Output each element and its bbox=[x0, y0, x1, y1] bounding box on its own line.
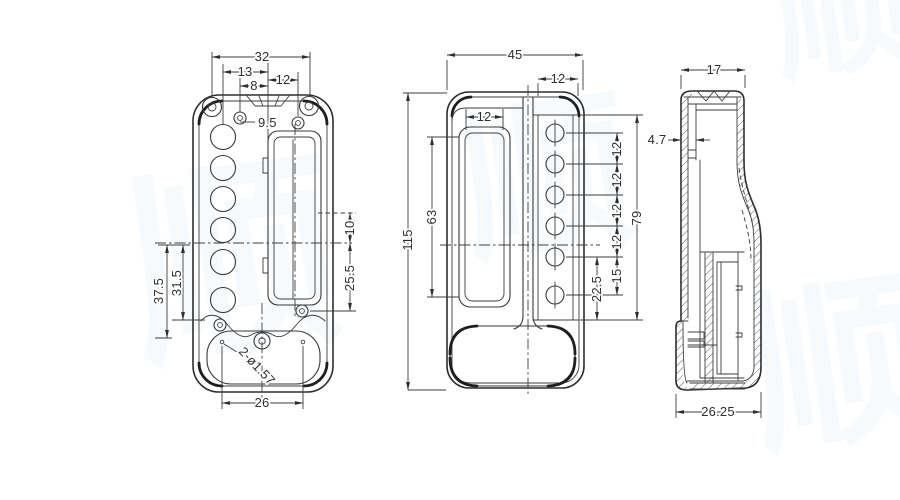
side-top-detail bbox=[688, 91, 737, 160]
dim-17: 17 bbox=[681, 62, 745, 77]
svg-text:79: 79 bbox=[629, 211, 644, 226]
front-screw-hole-top-right bbox=[300, 97, 319, 116]
dim-32: 32 bbox=[212, 49, 310, 64]
svg-text:45: 45 bbox=[508, 47, 523, 62]
svg-text:32: 32 bbox=[255, 49, 270, 64]
dim-63: 63 bbox=[424, 137, 439, 297]
center-bottom-cavity bbox=[450, 326, 575, 386]
svg-text:12: 12 bbox=[609, 235, 624, 250]
svg-text:12: 12 bbox=[276, 72, 291, 87]
svg-text:8: 8 bbox=[250, 78, 257, 93]
svg-text:26.25: 26.25 bbox=[701, 404, 735, 419]
svg-text:13: 13 bbox=[238, 64, 253, 79]
svg-text:15: 15 bbox=[609, 269, 624, 284]
side-bracket-detail bbox=[688, 160, 744, 383]
svg-text:12: 12 bbox=[609, 204, 624, 219]
side-view: 17 4.7 26.25 bbox=[648, 62, 761, 419]
svg-text:17: 17 bbox=[707, 62, 722, 77]
svg-text:4.7: 4.7 bbox=[648, 132, 667, 147]
dim-4-7: 4.7 bbox=[648, 132, 710, 147]
drawing-canvas: 顺 顺 顺 顺 bbox=[0, 0, 900, 500]
watermark-char: 顺 bbox=[762, 0, 900, 104]
dim-12: 12 bbox=[268, 72, 298, 87]
watermark-char: 顺 bbox=[113, 128, 355, 400]
side-rib-hatch bbox=[705, 253, 713, 383]
svg-text:37.5: 37.5 bbox=[151, 278, 166, 304]
dim-26-25: 26.25 bbox=[676, 404, 761, 419]
center-cavity-accent bbox=[450, 326, 575, 386]
svg-text:10: 10 bbox=[342, 221, 357, 236]
dim-115: 115 bbox=[400, 93, 415, 390]
svg-text:12: 12 bbox=[477, 109, 492, 124]
dim-13: 13 bbox=[223, 64, 268, 79]
dim-79: 79 bbox=[629, 115, 644, 320]
svg-text:115: 115 bbox=[400, 229, 415, 250]
dim-10: 10 bbox=[342, 213, 357, 243]
svg-text:12: 12 bbox=[609, 173, 624, 188]
svg-text:26: 26 bbox=[255, 395, 270, 410]
svg-text:31.5: 31.5 bbox=[169, 270, 184, 296]
dim-45: 45 bbox=[447, 47, 583, 62]
svg-text:12: 12 bbox=[609, 142, 624, 157]
technical-drawing-sheet: 顺 顺 顺 顺 bbox=[0, 0, 900, 500]
svg-text:9.5: 9.5 bbox=[258, 115, 277, 130]
svg-text:63: 63 bbox=[424, 210, 439, 225]
svg-text:25.5: 25.5 bbox=[342, 265, 357, 291]
dim-26: 26 bbox=[222, 395, 303, 410]
svg-text:22.5: 22.5 bbox=[589, 276, 604, 302]
front-pilot-hole-right bbox=[292, 117, 304, 129]
dim-8: 8 bbox=[240, 78, 268, 93]
svg-text:12: 12 bbox=[551, 71, 566, 86]
